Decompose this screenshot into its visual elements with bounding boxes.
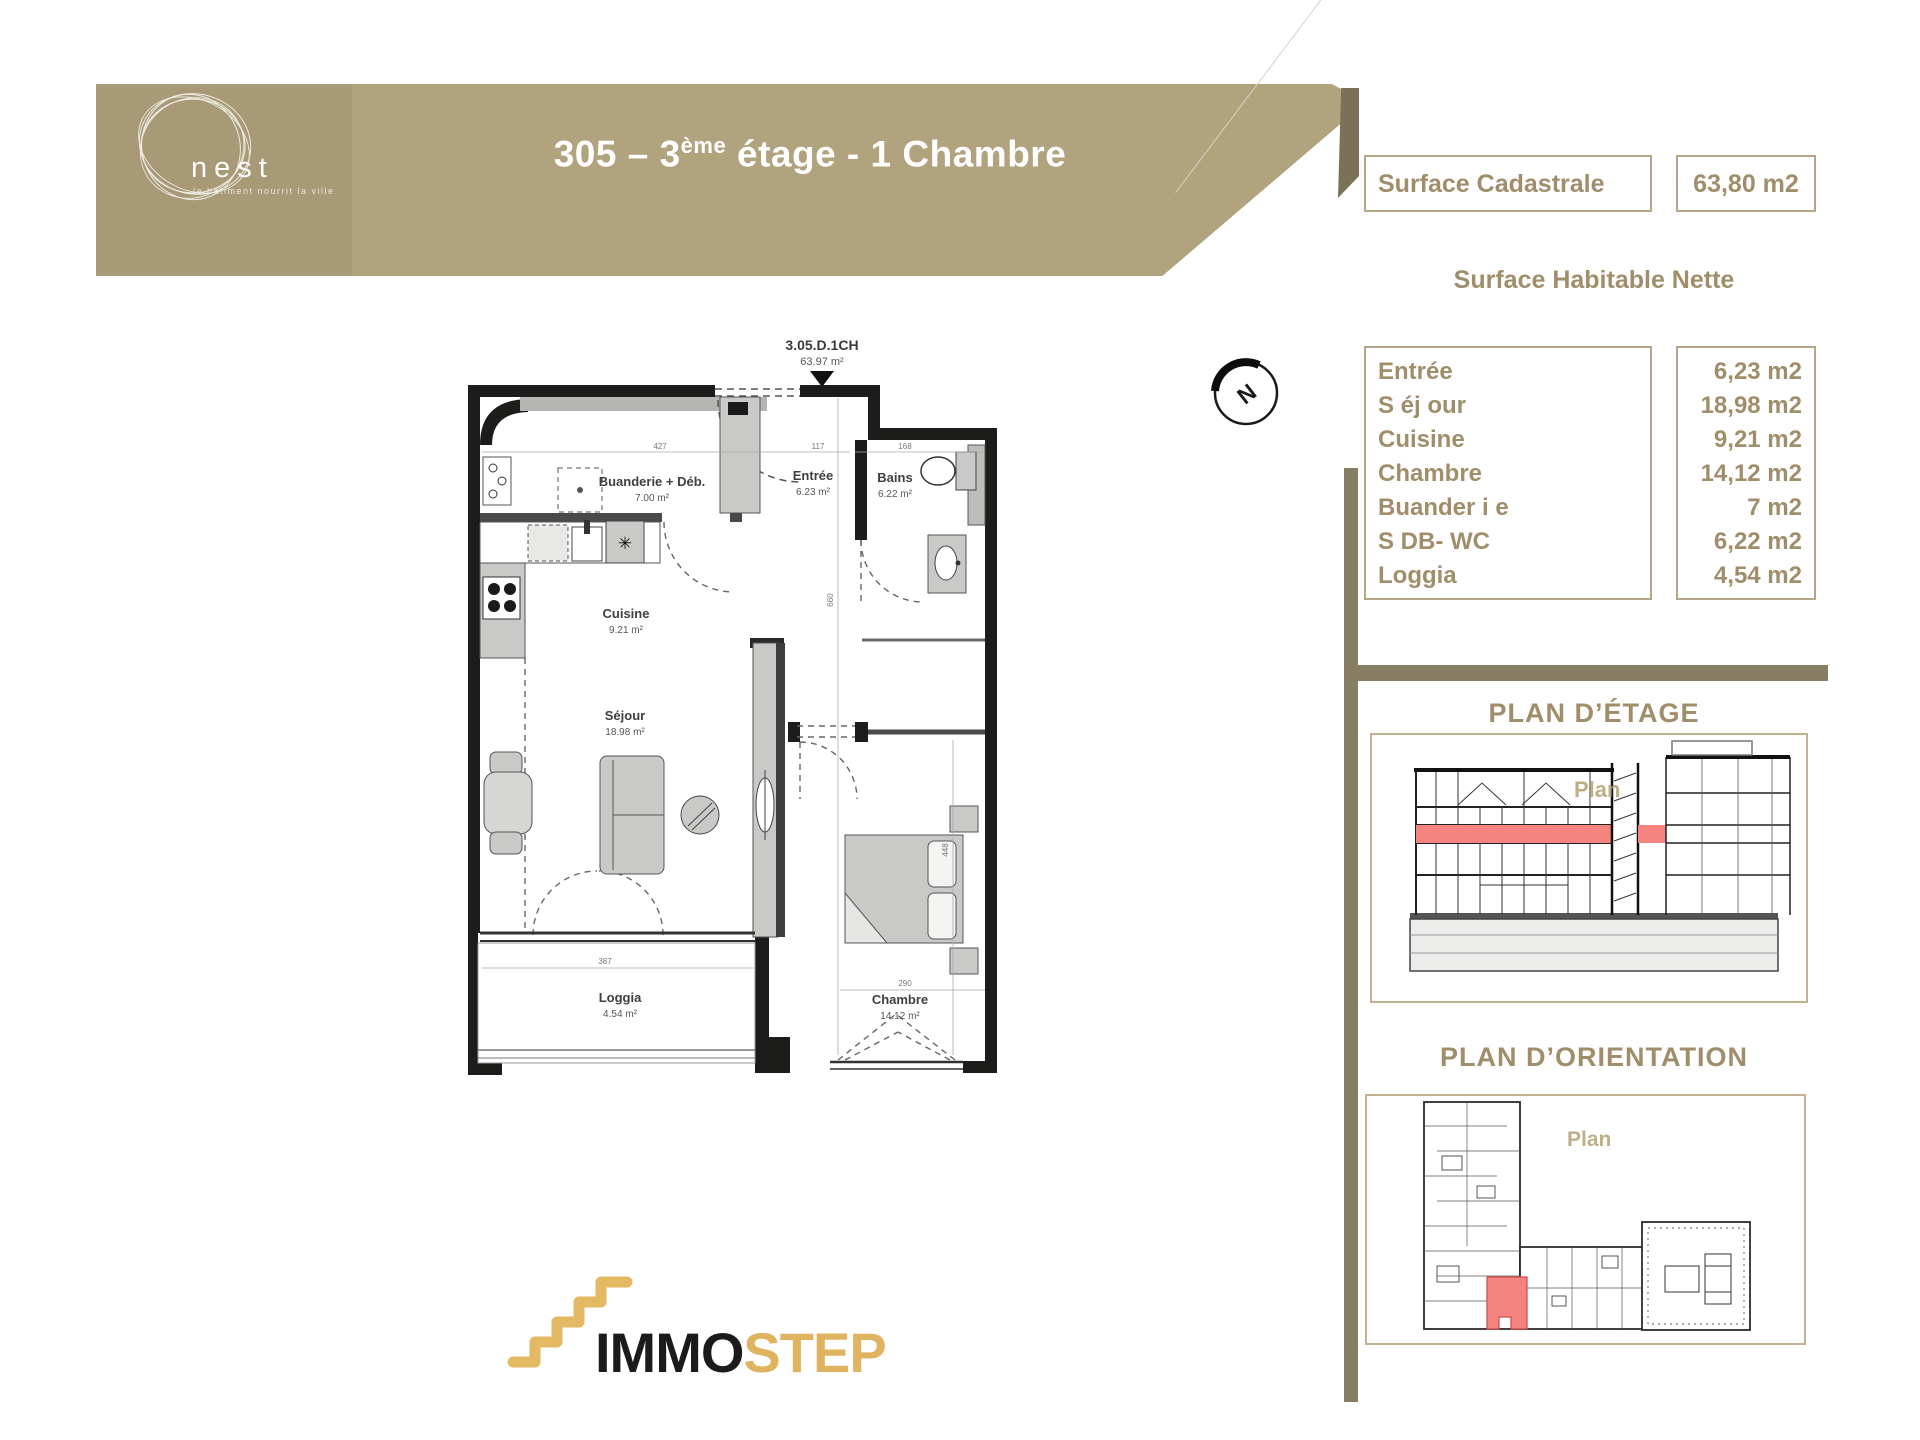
floorplan-brochure-page: nest le bâtiment nourrit la ville 305 – … bbox=[0, 0, 1920, 1440]
room-area: 14.12 m² bbox=[880, 1011, 920, 1022]
room-area: 6.23 m² bbox=[796, 487, 831, 498]
sliding-partition bbox=[753, 643, 785, 937]
room-area: 18.98 m² bbox=[605, 727, 645, 738]
unit-code: 3.05.D.1CH bbox=[785, 337, 858, 353]
immostep-logo-step: STEP bbox=[743, 1321, 885, 1384]
plan-etage-title: PLAN D’ÉTAGE bbox=[1374, 698, 1814, 729]
room-area: 4.54 m² bbox=[603, 1009, 638, 1020]
svg-text:660: 660 bbox=[826, 593, 835, 607]
living-furniture bbox=[484, 752, 719, 874]
building-section-drawing: Plan bbox=[1372, 735, 1806, 1001]
room-name: Entrée bbox=[793, 468, 833, 483]
svg-text:117: 117 bbox=[812, 442, 825, 451]
bedroom-furniture bbox=[845, 806, 978, 974]
entrance-marker-icon bbox=[810, 371, 834, 387]
entree-closet bbox=[720, 397, 760, 513]
plan-etage-box: Plan bbox=[1370, 733, 1808, 1003]
orientation-plan-drawing: Plan bbox=[1367, 1096, 1804, 1343]
plan-watermark: Plan bbox=[1574, 777, 1620, 802]
highlighted-floor-right bbox=[1638, 825, 1666, 843]
plan-orientation-title: PLAN D’ORIENTATION bbox=[1374, 1042, 1814, 1073]
room-name: Cuisine bbox=[603, 606, 650, 621]
room-name: Séjour bbox=[605, 708, 645, 723]
svg-text:290: 290 bbox=[898, 979, 912, 988]
svg-text:427: 427 bbox=[653, 442, 667, 451]
immostep-logo: IMMOSTEP bbox=[595, 1320, 886, 1385]
svg-text:168: 168 bbox=[898, 442, 912, 451]
bathroom-fixtures bbox=[921, 445, 985, 593]
svg-text:448: 448 bbox=[941, 843, 950, 857]
immostep-logo-immo: IMMO bbox=[595, 1321, 743, 1384]
room-name: Bains bbox=[877, 470, 912, 485]
room-name: Loggia bbox=[599, 990, 642, 1005]
unit-area: 63.97 m² bbox=[800, 356, 844, 368]
door-arcs bbox=[525, 522, 955, 1060]
svg-text:✳: ✳ bbox=[618, 534, 632, 553]
room-name: Buanderie + Déb. bbox=[599, 474, 706, 489]
unit-label: 3.05.D.1CH 63.97 m² bbox=[785, 337, 858, 387]
plan-watermark: Plan bbox=[1567, 1128, 1611, 1151]
room-area: 9.21 m² bbox=[609, 625, 644, 636]
north-compass-icon: N bbox=[1215, 362, 1277, 424]
highlighted-floor bbox=[1416, 825, 1612, 843]
plan-orientation-box: Plan bbox=[1365, 1094, 1806, 1345]
svg-text:387: 387 bbox=[598, 957, 612, 966]
room-area: 7.00 m² bbox=[635, 493, 670, 504]
room-name: Chambre bbox=[872, 992, 928, 1007]
room-area: 6.22 m² bbox=[878, 489, 913, 500]
